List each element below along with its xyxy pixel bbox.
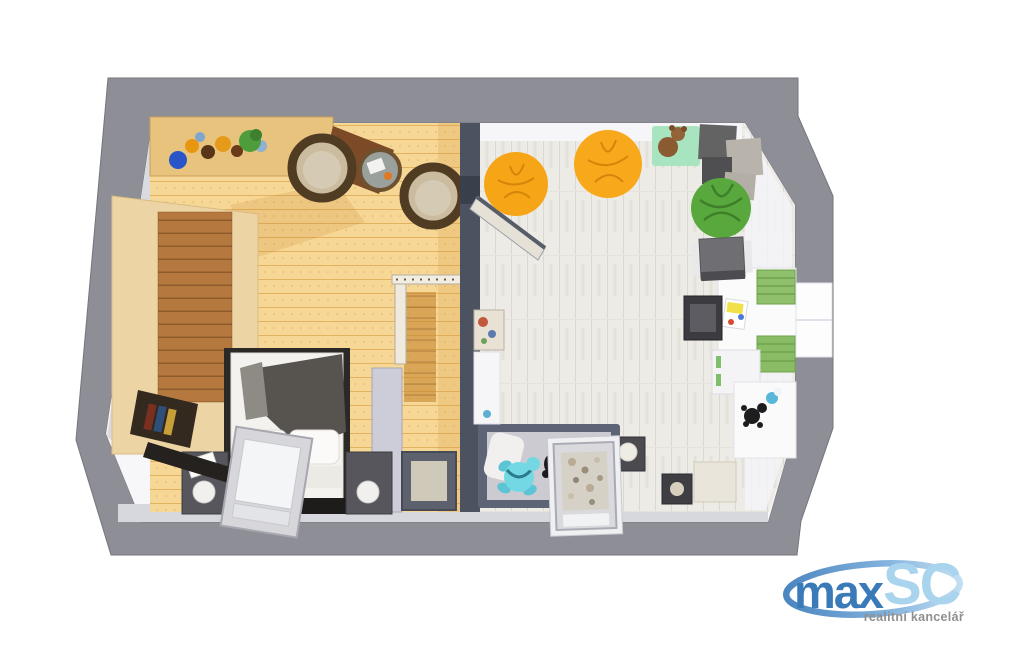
stair-railing-side (395, 284, 406, 364)
printer-top (690, 304, 716, 332)
towel-stack-1 (757, 270, 795, 304)
desk-item-blue (738, 314, 744, 320)
wicker-chair-1-cushion (303, 151, 341, 189)
toy-figure-limb-1 (741, 405, 747, 411)
counter-item (483, 410, 491, 418)
pebble-5 (586, 484, 594, 492)
sideboard-plant-top (250, 129, 262, 141)
stool-seat (411, 461, 447, 501)
roof-window-kids-glass (561, 451, 609, 511)
kids-desk-2 (734, 382, 796, 458)
agency-logo: max SC realitní kancelář (780, 556, 966, 634)
pebble-6 (597, 475, 603, 481)
pebble-4 (573, 477, 579, 483)
bowl-amber-2 (215, 136, 231, 152)
pebble-3 (594, 457, 600, 463)
roof-window-bedroom-glass (235, 439, 301, 509)
pebble-7 (568, 493, 574, 499)
pebble-1 (568, 458, 576, 466)
wardrobe-steps (158, 212, 232, 402)
roof-window-kids-sill (563, 513, 609, 527)
toy-white (774, 388, 782, 396)
cabinet-handle-1 (716, 356, 721, 368)
staircase-shadow (404, 292, 436, 402)
wall-art-blob-1 (478, 317, 488, 327)
wall-art (474, 310, 504, 350)
turtle-head (526, 457, 540, 471)
towel-stack-2 (757, 336, 795, 372)
toy-figure-head (757, 403, 767, 413)
logo-brand-secondary: SC (883, 556, 960, 614)
storage-cube-2-item (670, 482, 684, 496)
teddy-ear-1 (669, 125, 675, 131)
pebble-8 (589, 499, 595, 505)
bedside-lamp-left (193, 481, 215, 503)
storage-cube-beige (694, 462, 736, 502)
bedside-lamp-right (357, 481, 379, 503)
teddy-ear-2 (681, 126, 687, 132)
toy-figure-limb-2 (743, 421, 749, 427)
pebble-2 (582, 467, 589, 474)
storage-cube-bowl (619, 443, 637, 461)
bowl-amber-1 (185, 139, 199, 153)
logo-tagline: realitní kancelář (864, 611, 964, 624)
bowl-dark-1 (201, 145, 215, 159)
toy-figure-limb-3 (757, 422, 763, 428)
logo-brand-primary: max (794, 568, 882, 615)
side-table-candle (384, 172, 392, 180)
wicker-chair-2-cushion (415, 180, 451, 216)
cabinet-handle-2 (716, 374, 721, 386)
bowl-steel-blue (195, 132, 205, 142)
desk-item-red (728, 319, 734, 325)
floorplan-image: max SC realitní kancelář (0, 0, 1024, 653)
bowl-cobalt (169, 151, 187, 169)
wall-art-blob-3 (481, 338, 487, 344)
wall-art-blob-2 (488, 330, 496, 338)
